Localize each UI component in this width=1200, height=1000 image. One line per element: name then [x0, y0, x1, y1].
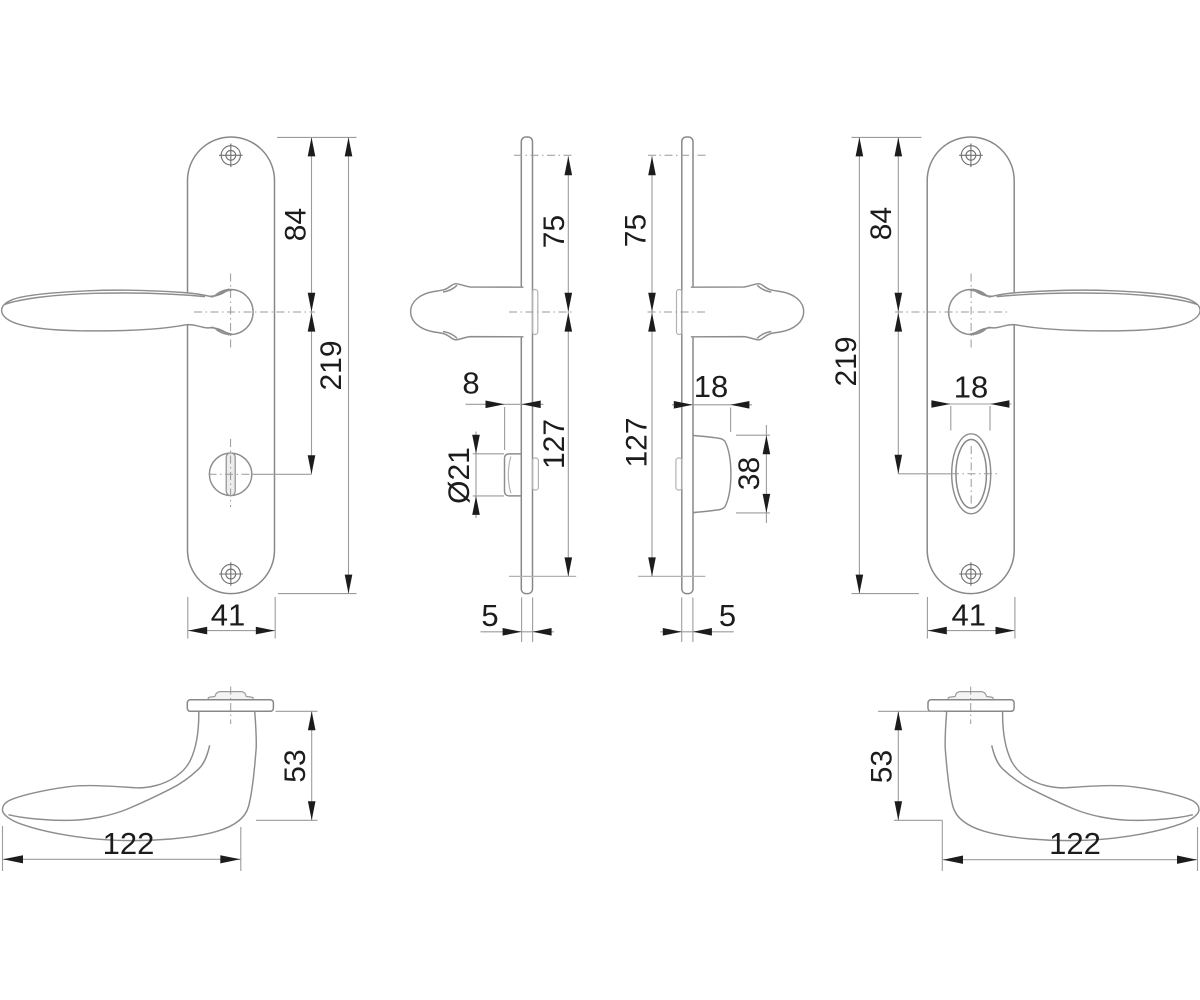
svg-text:41: 41 — [211, 598, 245, 633]
svg-text:18: 18 — [954, 370, 988, 405]
svg-text:Ø21: Ø21 — [443, 447, 476, 504]
svg-text:84: 84 — [865, 207, 898, 240]
svg-text:219: 219 — [315, 340, 348, 390]
svg-text:122: 122 — [1049, 826, 1101, 861]
svg-text:84: 84 — [280, 208, 313, 241]
svg-text:53: 53 — [866, 750, 899, 783]
svg-text:5: 5 — [719, 598, 736, 633]
svg-text:8: 8 — [462, 366, 479, 401]
svg-text:127: 127 — [621, 417, 654, 467]
svg-text:41: 41 — [951, 598, 985, 633]
svg-text:122: 122 — [103, 826, 155, 861]
svg-text:127: 127 — [538, 419, 571, 469]
svg-text:5: 5 — [481, 598, 498, 633]
svg-text:75: 75 — [620, 214, 653, 247]
svg-text:53: 53 — [279, 749, 312, 782]
svg-text:75: 75 — [538, 215, 571, 248]
svg-text:18: 18 — [694, 369, 728, 404]
svg-text:38: 38 — [733, 457, 766, 490]
svg-text:219: 219 — [830, 336, 863, 386]
